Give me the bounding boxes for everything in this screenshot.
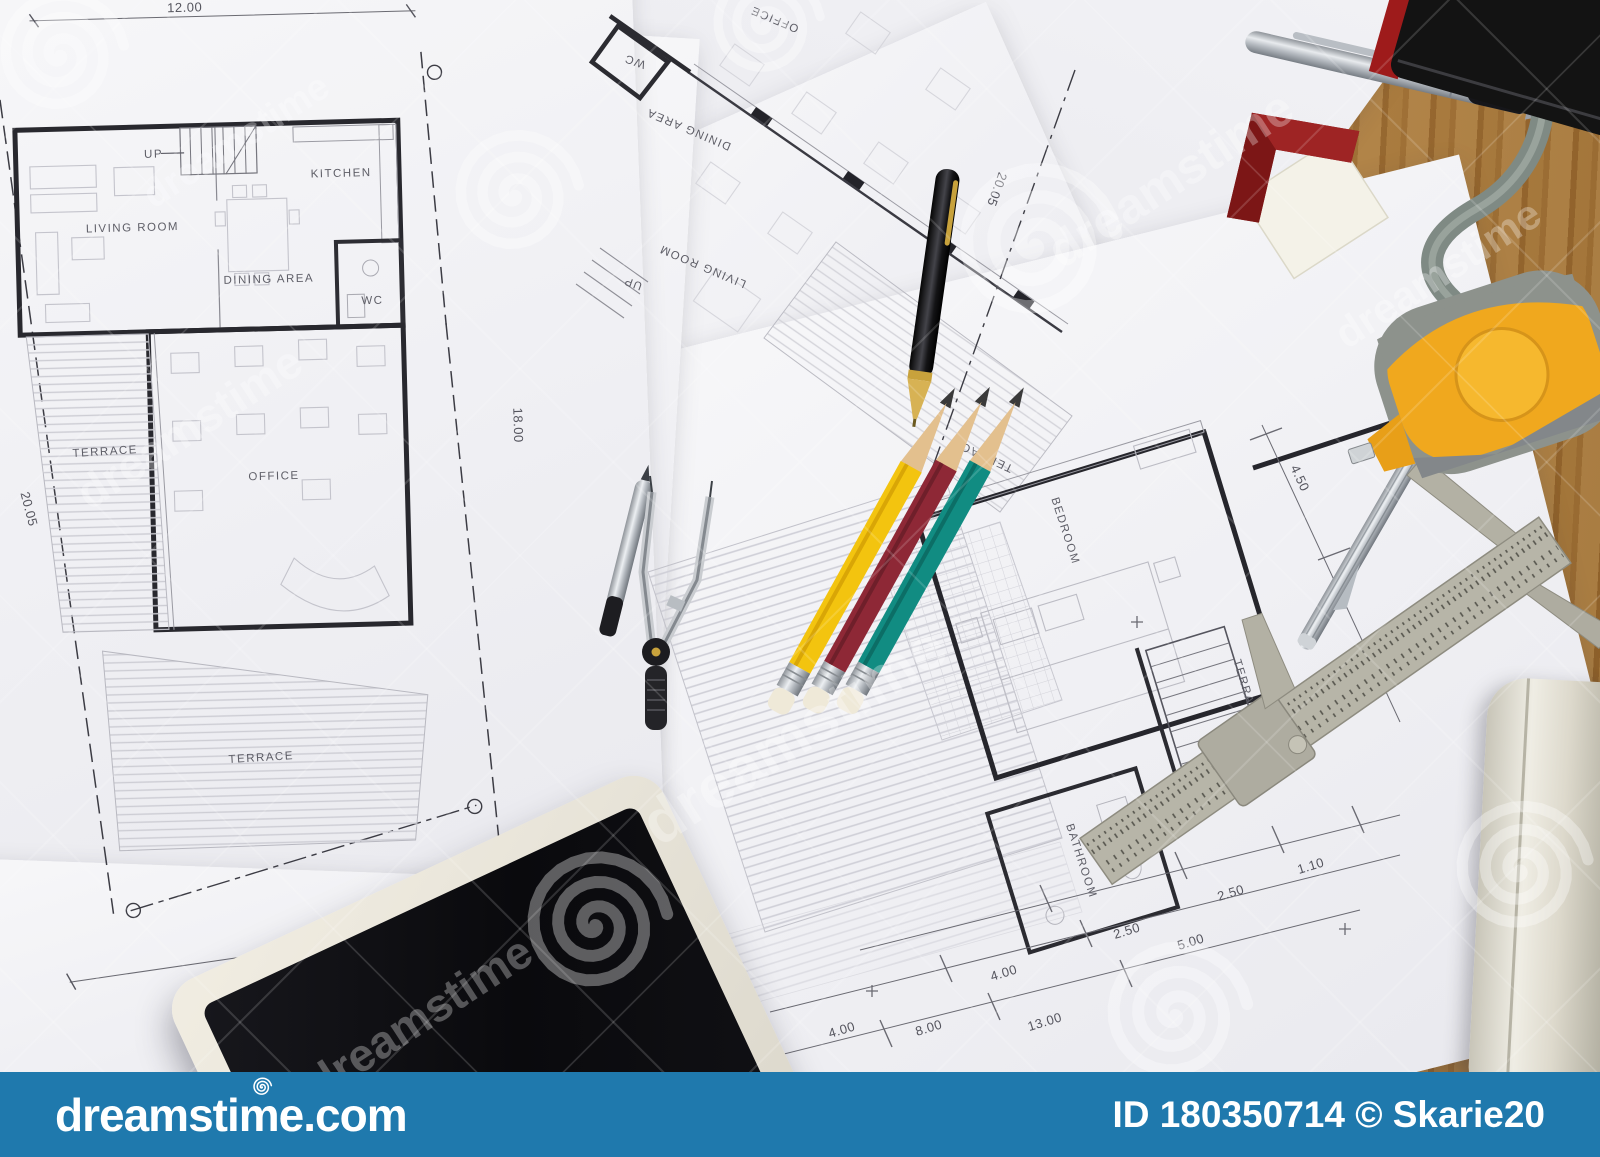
dim-800: 8.00 xyxy=(913,1017,944,1039)
room-label-office-2: OFFICE xyxy=(749,3,801,34)
dim-250-a: 2.50 xyxy=(1215,882,1246,904)
room-label-dining-1: DINING AREA xyxy=(223,272,314,286)
dim-12-00: 12.00 xyxy=(167,0,202,15)
room-label-dining-2: DINING AREA xyxy=(645,106,733,152)
dim-110: 1.10 xyxy=(1295,855,1326,877)
room-label-wc-1: WC xyxy=(361,295,383,308)
room-label-wc-2: WC xyxy=(623,51,648,70)
photo-stage: 12.00 20.05 18.00 8.00 UP xyxy=(0,0,1600,1157)
furniture-living xyxy=(30,160,302,323)
image-credit: ID 180350714 © Skarie20 xyxy=(1112,1094,1545,1136)
vernier-caliper xyxy=(1013,422,1600,955)
dim-1300: 13.00 xyxy=(1026,1009,1064,1034)
dim-20-05-left: 20.05 xyxy=(18,490,41,528)
dreamstime-logo: dreamstime.com xyxy=(55,1088,407,1142)
dreamstime-logo-text: dreamstime.com xyxy=(55,1089,407,1141)
credit-bar: dreamstime.com ID 180350714 © Skarie20 xyxy=(0,1072,1600,1157)
room-label-up-1: UP xyxy=(144,148,163,160)
dim-400-mid: 4.00 xyxy=(988,962,1019,984)
dim-250-b: 2.50 xyxy=(1111,920,1142,942)
dim-400-low: 4.00 xyxy=(826,1019,857,1041)
room-label-office-1: OFFICE xyxy=(248,470,299,483)
room-label-kitchen-1: KITCHEN xyxy=(310,167,371,181)
leather-case xyxy=(1369,0,1600,156)
room-label-bedroom-3: BEDROOM xyxy=(1048,496,1081,566)
room-label-living-2: LIVING ROOM xyxy=(658,242,748,289)
room-label-living-1: LIVING ROOM xyxy=(86,221,179,235)
dim-20-05-edge-2: 20.05 xyxy=(984,171,1010,209)
spiral-logo xyxy=(251,1076,273,1098)
wall-chunks-2 xyxy=(751,107,1035,309)
house-model xyxy=(1187,69,1408,291)
dim-18-00: 18.00 xyxy=(510,407,526,442)
